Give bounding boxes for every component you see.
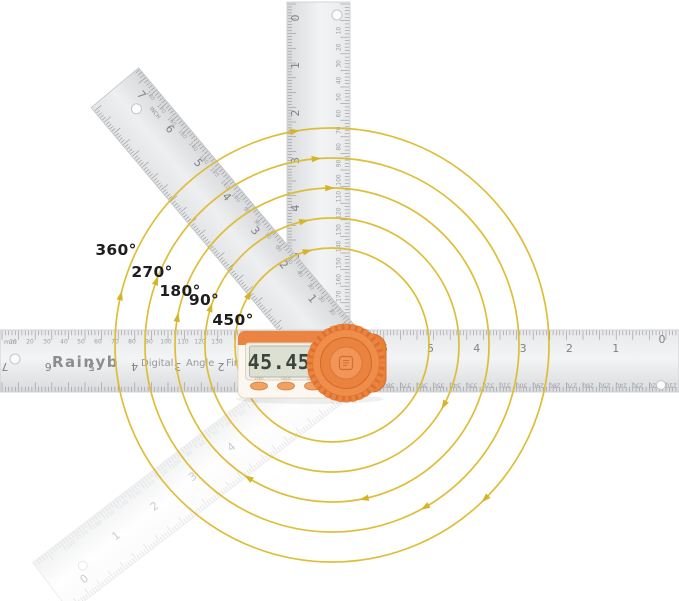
horizontal-ruler-hole-right	[657, 381, 666, 390]
hub-device: 45.45 ° ZERO HOLD ON/OFF	[236, 324, 386, 404]
ruler-number: 80	[128, 339, 136, 346]
ruler-number: 40	[336, 76, 343, 84]
ruler-number: 90	[145, 339, 153, 346]
horizontal-ruler-unit-label: mm	[4, 338, 17, 346]
ruler-number: 20	[26, 339, 34, 346]
ruler-number: 290	[532, 382, 544, 389]
ruler-number: 300	[516, 382, 528, 389]
ruler-number: 260	[582, 382, 594, 389]
angle-finder-product-image: 1020304050607080901001101201301401501601…	[0, 0, 679, 601]
rotation-arrowhead	[421, 502, 431, 510]
ruler-number: 250	[599, 382, 611, 389]
horizontal-ruler-hole-left	[10, 354, 20, 364]
ruler-number: 80	[336, 143, 343, 151]
ruler-number: 2	[566, 342, 573, 355]
ruler-number: 60	[336, 110, 343, 118]
ruler-number: 2	[218, 360, 225, 373]
button-label-zero: ZERO	[255, 377, 264, 381]
ruler-number: 4	[131, 360, 138, 373]
hold-button[interactable]	[278, 382, 295, 390]
ruler-number: 330	[466, 382, 478, 389]
vertical-ruler-hole	[332, 10, 342, 20]
ruler-number: 1	[612, 342, 619, 355]
button-label-hold: HOLD	[281, 377, 291, 381]
ruler-number: 4	[473, 342, 480, 355]
rotation-arrowhead	[117, 291, 123, 301]
ruler-number: 110	[177, 339, 189, 346]
ruler-number: 120	[336, 207, 343, 219]
ruler-number: 4	[289, 205, 302, 212]
ruler-number: 130	[336, 224, 343, 236]
ruler-number: 170	[336, 290, 343, 302]
ruler-number: 1	[289, 62, 302, 69]
ruler-number: 2	[289, 110, 302, 117]
angle-label-450: 450°	[212, 311, 253, 329]
ruler-number: 240	[615, 382, 627, 389]
lcd-value: 45.45	[248, 350, 311, 374]
ruler-number: 210	[665, 382, 677, 389]
ruler-number: 270	[565, 382, 577, 389]
angle-label-90: 90°	[189, 291, 219, 309]
ruler-number: 100	[160, 339, 172, 346]
ruler-number: 110	[336, 191, 343, 203]
ruler-number: 40	[60, 339, 68, 346]
ruler-number: 50	[77, 339, 85, 346]
ruler-number: 10	[336, 27, 343, 35]
ruler-number: 100	[336, 174, 343, 186]
ruler-number: 90	[336, 159, 343, 167]
ruler-number: 310	[499, 382, 511, 389]
ruler-number: 140	[336, 240, 343, 252]
ruler-number: 7	[2, 360, 9, 373]
ruler-number: 30	[336, 60, 343, 68]
ruler-number: 3	[520, 342, 527, 355]
ruler-number: 0	[289, 15, 302, 22]
ruler-number: 160	[336, 274, 343, 286]
ruler-number: 150	[336, 257, 343, 269]
ruler-number: 370	[399, 382, 411, 389]
ruler-number: 20	[336, 43, 343, 51]
ruler-number: 0	[659, 333, 666, 346]
ruler-number: 230	[632, 382, 644, 389]
zero-button[interactable]	[251, 382, 268, 390]
locking-knob[interactable]	[307, 324, 385, 402]
ruler-number: 350	[433, 382, 445, 389]
ruler-number: 30	[43, 339, 51, 346]
ruler-number: 130	[211, 339, 223, 346]
rotation-arrowhead	[244, 475, 254, 483]
brand-name: Rainyb	[52, 353, 119, 371]
ruler-number: 60	[94, 339, 102, 346]
ruler-number: 50	[336, 93, 343, 101]
rotation-arrowhead	[442, 400, 449, 410]
brand-word-angle: Angle	[186, 358, 214, 369]
ruler-number: 6	[45, 360, 52, 373]
angle-label-360: 360°	[95, 241, 136, 259]
angle-label-270: 270°	[131, 263, 172, 281]
ruler-number: 280	[549, 382, 561, 389]
